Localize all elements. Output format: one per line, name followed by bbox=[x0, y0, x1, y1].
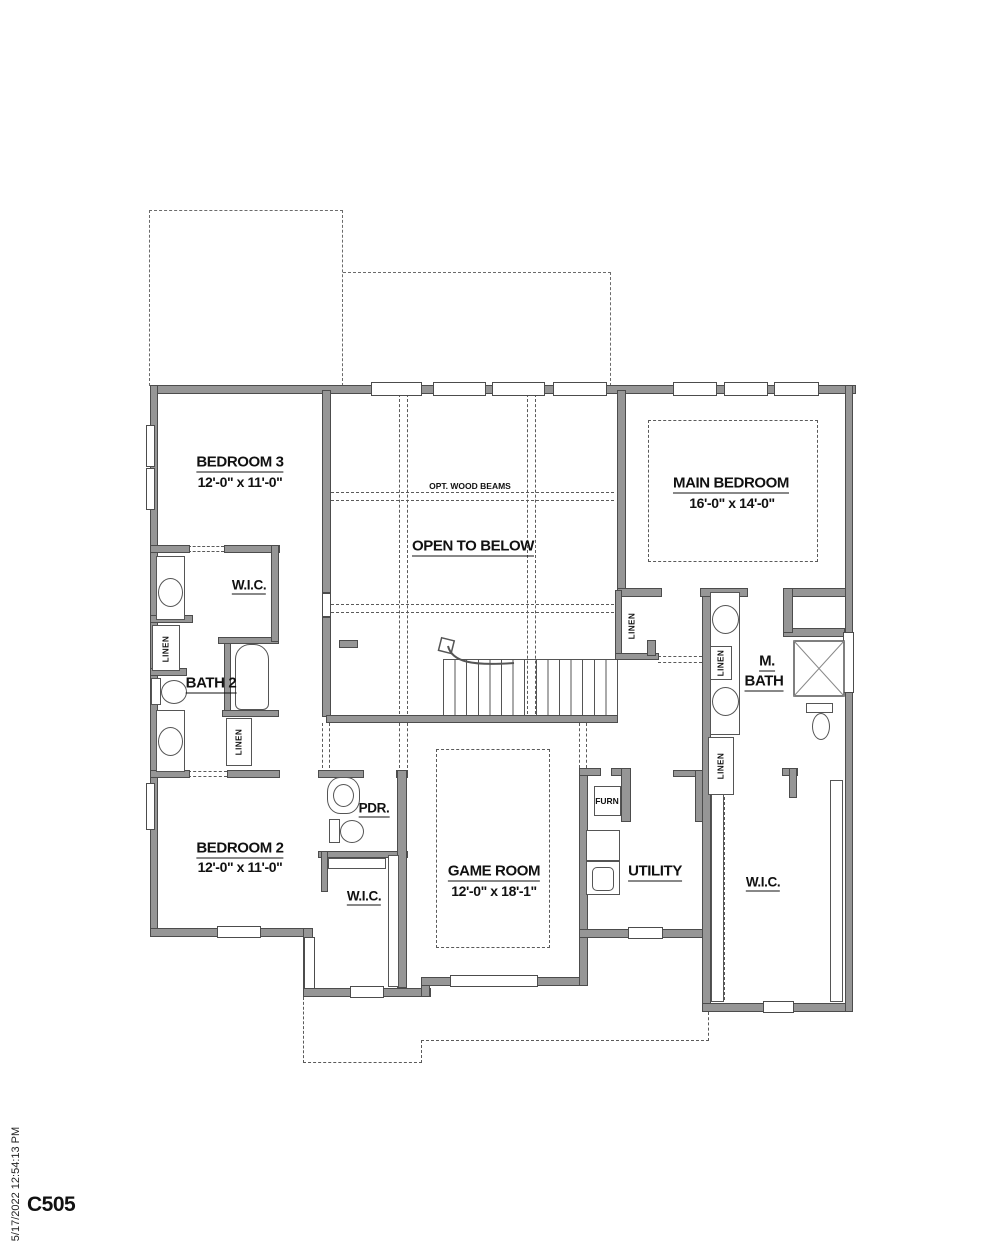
wall bbox=[615, 590, 622, 660]
dimension-label-main-bedroom: 16'-0" x 14'-0" bbox=[689, 495, 775, 511]
dashed-line bbox=[708, 1012, 709, 1041]
window bbox=[553, 382, 607, 396]
dimension-label-bedroom2: 12'-0" x 11'-0" bbox=[198, 859, 283, 875]
dashed-line bbox=[322, 723, 323, 768]
dashed-line bbox=[331, 604, 614, 605]
linen-label: LINEN bbox=[162, 636, 171, 663]
dashed-line bbox=[188, 771, 227, 772]
shower bbox=[793, 640, 845, 697]
wall bbox=[227, 770, 280, 778]
room-label-bedroom2: BEDROOM 2 bbox=[196, 840, 283, 859]
plot-date-stamp: 5/17/2022 12:54:13 PM bbox=[10, 1127, 22, 1241]
wall bbox=[789, 768, 797, 798]
window bbox=[146, 425, 155, 467]
roof-outline bbox=[343, 272, 611, 386]
room-label-wic-main: W.I.C. bbox=[746, 875, 780, 892]
sheet-number: C505 bbox=[27, 1193, 75, 1217]
sink bbox=[712, 687, 739, 716]
toilet-bowl bbox=[812, 713, 830, 740]
room-label-wic-bed2: W.I.C. bbox=[347, 889, 381, 906]
linen-label: LINEN bbox=[235, 729, 244, 756]
closet-shelf bbox=[328, 858, 386, 869]
wall bbox=[786, 588, 846, 597]
window bbox=[146, 468, 155, 510]
dashed-line bbox=[303, 1062, 422, 1063]
window bbox=[371, 382, 422, 396]
linen-label: LINEN bbox=[717, 650, 726, 677]
annotation-opt-wood-beams: OPT. WOOD BEAMS bbox=[429, 481, 511, 491]
wall bbox=[321, 851, 328, 892]
wall bbox=[579, 768, 601, 776]
wall bbox=[339, 640, 358, 648]
wall bbox=[322, 390, 331, 593]
toilet-tank bbox=[806, 703, 833, 713]
washer-box bbox=[586, 830, 620, 861]
dashed-line bbox=[579, 723, 580, 768]
wall bbox=[322, 617, 331, 717]
window bbox=[724, 382, 768, 396]
room-label-mbath-line2: BATH bbox=[745, 673, 784, 692]
sink bbox=[712, 605, 739, 634]
wall bbox=[326, 715, 618, 723]
linen-label: LINEN bbox=[628, 613, 637, 640]
wall bbox=[271, 545, 279, 642]
toilet-tank bbox=[329, 819, 340, 843]
dashed-line bbox=[331, 500, 614, 501]
room-label-bath2: BATH 2 bbox=[186, 675, 237, 694]
dashed-line bbox=[399, 723, 400, 768]
dashed-line bbox=[329, 723, 330, 768]
window bbox=[146, 783, 155, 830]
dashed-line bbox=[331, 612, 614, 613]
dashed-line bbox=[303, 997, 304, 1063]
dashed-line bbox=[407, 394, 408, 714]
dashed-line bbox=[586, 723, 587, 768]
dashed-line bbox=[188, 551, 224, 552]
window bbox=[217, 926, 261, 938]
room-label-game-room: GAME ROOM bbox=[448, 863, 540, 882]
window bbox=[433, 382, 486, 396]
dashed-line bbox=[658, 656, 702, 657]
wall bbox=[845, 385, 853, 1012]
dashed-line bbox=[658, 662, 702, 663]
ceiling-outline-game-room bbox=[436, 749, 550, 948]
room-label-utility: UTILITY bbox=[628, 863, 682, 882]
dashed-line bbox=[399, 394, 400, 714]
roof-outline bbox=[149, 210, 343, 386]
closet-shelf bbox=[388, 855, 399, 987]
bathtub bbox=[235, 644, 269, 710]
pedestal-sink-basin bbox=[333, 784, 354, 807]
dashed-line bbox=[188, 546, 224, 547]
toilet-bowl bbox=[340, 820, 364, 843]
linen-label: LINEN bbox=[717, 753, 726, 780]
wall bbox=[695, 770, 703, 822]
washer-drum bbox=[592, 867, 614, 891]
stair-rail bbox=[424, 634, 519, 679]
wall bbox=[150, 545, 190, 553]
wall bbox=[621, 768, 631, 822]
room-label-main-bedroom: MAIN BEDROOM bbox=[673, 475, 789, 494]
dimension-label-bedroom3: 12'-0" x 11'-0" bbox=[198, 474, 283, 490]
wall bbox=[617, 390, 626, 590]
sink bbox=[158, 578, 183, 607]
furnace-label: FURN bbox=[595, 796, 619, 806]
wall bbox=[783, 588, 793, 633]
window bbox=[673, 382, 717, 396]
closet-shelf bbox=[830, 780, 843, 1002]
toilet-tank bbox=[151, 678, 161, 705]
room-label-pdr: PDR. bbox=[359, 801, 390, 818]
window bbox=[450, 975, 538, 987]
room-label-wic-bed3: W.I.C. bbox=[232, 578, 266, 595]
window bbox=[350, 986, 384, 998]
sink bbox=[158, 727, 183, 756]
dashed-line bbox=[421, 1040, 422, 1063]
dashed-line bbox=[331, 492, 614, 493]
toilet-bowl bbox=[161, 680, 187, 704]
wall bbox=[222, 710, 279, 717]
room-label-open-to-below: OPEN TO BELOW bbox=[412, 538, 534, 557]
room-label-mbath-line1: M. bbox=[759, 653, 775, 672]
dashed-line bbox=[407, 723, 408, 768]
window bbox=[774, 382, 819, 396]
dimension-label-game-room: 12'-0" x 18'-1" bbox=[451, 883, 537, 899]
dashed-line bbox=[188, 776, 227, 777]
window bbox=[628, 927, 663, 939]
wall bbox=[617, 588, 662, 597]
dashed-line bbox=[724, 782, 725, 1000]
wall bbox=[647, 640, 656, 656]
floor-plan-canvas: BEDROOM 3 12'-0" x 11'-0" W.I.C. BATH 2 … bbox=[0, 0, 1000, 1250]
window bbox=[304, 937, 315, 989]
window bbox=[322, 593, 331, 617]
window bbox=[492, 382, 545, 396]
window bbox=[763, 1001, 794, 1013]
room-label-bedroom3: BEDROOM 3 bbox=[196, 454, 283, 473]
dashed-line bbox=[421, 1040, 709, 1041]
closet-shelf bbox=[711, 780, 724, 1002]
